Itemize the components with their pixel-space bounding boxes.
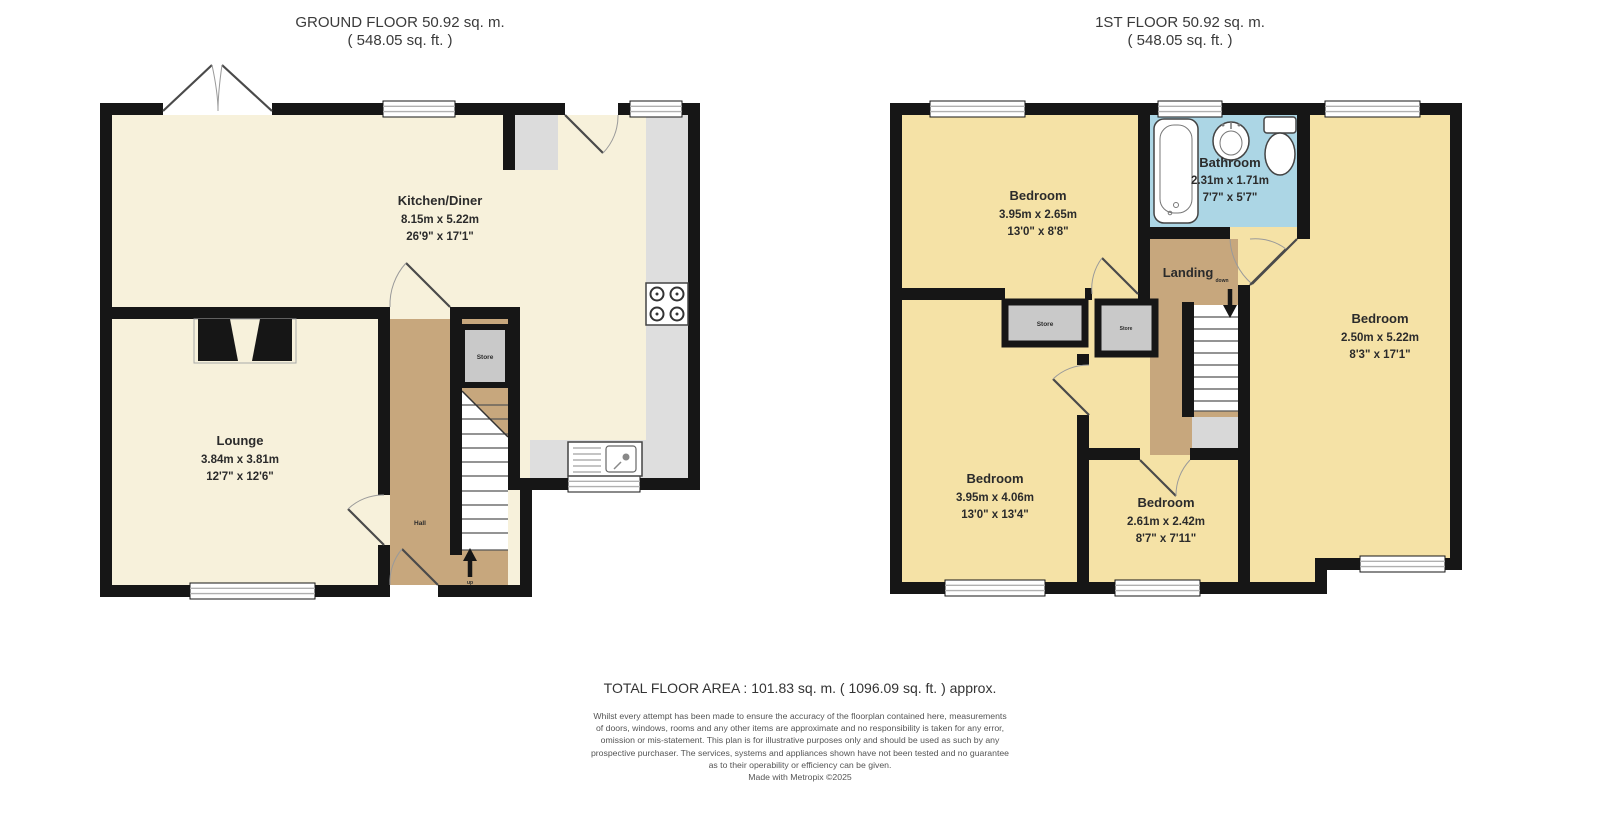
bedroom-front-label: Bedroom xyxy=(1009,188,1066,203)
bedroom-side-label: Bedroom xyxy=(1351,311,1408,326)
bathroom-imperial: 7'7" x 5'7" xyxy=(1203,192,1258,204)
staircase-up xyxy=(462,391,508,550)
window xyxy=(1360,556,1445,572)
bedroom-small-metric: 2.61m x 2.42m xyxy=(1127,516,1205,528)
window xyxy=(945,580,1045,596)
disclaimer-block: Whilst every attempt has been made to en… xyxy=(0,710,1600,783)
window xyxy=(930,101,1025,117)
window xyxy=(630,101,682,117)
bedroom-side-metric: 2.50m x 5.22m xyxy=(1341,332,1419,344)
disclaimer-line: of doors, windows, rooms and any other i… xyxy=(0,722,1600,734)
kitchen-counter-right xyxy=(646,115,688,440)
landing-label: Landing xyxy=(1163,265,1214,280)
bathroom-metric: 2.31m x 1.71m xyxy=(1191,175,1269,187)
lounge-metric: 3.84m x 3.81m xyxy=(201,454,279,466)
bedroom-back-imperial: 13'0" x 13'4" xyxy=(961,509,1029,521)
ground-floor-plan: Kitchen/Diner 8.15m x 5.22m 26'9" x 17'1… xyxy=(90,55,710,615)
disclaimer-line: Whilst every attempt has been made to en… xyxy=(0,710,1600,722)
window xyxy=(1158,101,1222,117)
ground-floor-title-block: GROUND FLOOR 50.92 sq. m. ( 548.05 sq. f… xyxy=(90,14,710,50)
floorplan-page: GROUND FLOOR 50.92 sq. m. ( 548.05 sq. f… xyxy=(0,0,1600,824)
sink-icon xyxy=(568,442,642,476)
bedroom-small-label: Bedroom xyxy=(1137,495,1194,510)
hall-label: Hall xyxy=(414,520,426,527)
kitchen-diner-label: Kitchen/Diner xyxy=(398,193,483,208)
first-floor-title: 1ST FLOOR 50.92 sq. m. xyxy=(870,14,1490,32)
french-doors xyxy=(163,65,272,111)
stairs-down-label: down xyxy=(1215,278,1228,284)
window xyxy=(1325,101,1420,117)
window xyxy=(1115,580,1200,596)
kitchen-diner-imperial: 26'9" x 17'1" xyxy=(406,231,474,243)
disclaimer-line: omission or mis-statement. This plan is … xyxy=(0,734,1600,746)
ground-floor-subtitle: ( 548.05 sq. ft. ) xyxy=(90,32,710,50)
window xyxy=(383,101,455,117)
first-floor-subtitle: ( 548.05 sq. ft. ) xyxy=(870,32,1490,50)
kitchen-cupboard xyxy=(515,115,558,170)
store-small-label: Store xyxy=(1120,326,1133,332)
store-label: Store xyxy=(477,354,494,361)
bedroom-back-metric: 3.95m x 4.06m xyxy=(956,492,1034,504)
kitchen-diner-metric: 8.15m x 5.22m xyxy=(401,214,479,226)
stairs-up-label: up xyxy=(467,580,473,586)
bathtub-icon xyxy=(1154,119,1198,223)
bathroom-label: Bathroom xyxy=(1199,155,1260,170)
bedroom-back-label: Bedroom xyxy=(966,471,1023,486)
lounge-imperial: 12'7" x 12'6" xyxy=(206,471,274,483)
bedroom-front-metric: 3.95m x 2.65m xyxy=(999,209,1077,221)
window xyxy=(190,583,315,599)
first-floor-title-block: 1ST FLOOR 50.92 sq. m. ( 548.05 sq. ft. … xyxy=(870,14,1490,50)
staircase-down xyxy=(1192,305,1238,411)
ground-floor-title: GROUND FLOOR 50.92 sq. m. xyxy=(90,14,710,32)
first-floor-plan: Bedroom 3.95m x 2.65m 13'0" x 8'8" Bathr… xyxy=(870,55,1490,615)
window xyxy=(568,476,640,492)
bedroom-side-imperial: 8'3" x 17'1" xyxy=(1349,349,1410,361)
stove-icon xyxy=(646,283,688,325)
metropix-credit: Made with Metropix ©2025 xyxy=(0,771,1600,783)
disclaimer-line: prospective purchaser. The services, sys… xyxy=(0,747,1600,759)
stair-flight xyxy=(1192,305,1238,411)
toilet-icon xyxy=(1264,117,1296,175)
bedroom-small-imperial: 8'7" x 7'11" xyxy=(1136,533,1197,545)
total-floor-area: TOTAL FLOOR AREA : 101.83 sq. m. ( 1096.… xyxy=(0,680,1600,696)
bedroom-front-imperial: 13'0" x 8'8" xyxy=(1007,226,1068,238)
lounge-label: Lounge xyxy=(217,433,264,448)
store-large-label: Store xyxy=(1037,321,1054,328)
disclaimer-line: as to their operability or efficiency ca… xyxy=(0,759,1600,771)
